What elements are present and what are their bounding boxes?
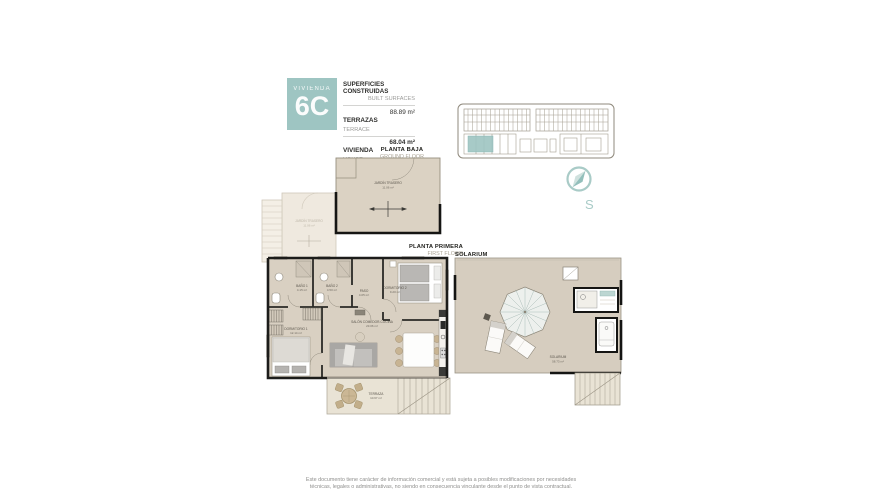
surfaces-subtitle: BUILT SURFACES xyxy=(343,96,415,102)
surfaces-title: SUPERFICIES CONSTRUIDAS xyxy=(343,81,415,95)
bano1-area: 4.15 m² xyxy=(297,288,307,292)
exterior-stairs xyxy=(262,200,282,262)
outdoor-kitchenette xyxy=(574,288,618,312)
sink xyxy=(275,273,283,281)
back-garden: JARDÍN TRASERO 11.06 m² xyxy=(336,158,440,233)
bedroom2-bed xyxy=(390,261,442,303)
terrace-sublabel: TERRACE xyxy=(343,127,378,133)
compass: S xyxy=(552,162,608,214)
compass-south-label: S xyxy=(585,197,594,212)
back-garden-name: JARDÍN TRASERO xyxy=(374,181,402,185)
outdoor-shower-unit xyxy=(596,318,617,352)
terrace-value: 88.89 m² xyxy=(390,109,415,116)
toilet xyxy=(272,293,280,303)
unit-code: 6C xyxy=(287,93,337,120)
key-plan-highlighted-unit xyxy=(468,136,493,152)
terraza-area: 10.67 m² xyxy=(370,396,382,400)
salon-area: 23.06 m² xyxy=(366,324,378,328)
dorm1-area: 12.14 m² xyxy=(290,331,302,335)
adjacent-garden-name: JARDÍN TRASERO xyxy=(295,219,323,223)
solarium-stairs xyxy=(575,373,620,405)
disclaimer-line2: técnicas, legales o administrativas, no … xyxy=(0,484,882,491)
terrace-label: TERRAZAS xyxy=(343,117,378,124)
first-floor-plan: BAÑO 1 4.15 m² BAÑO 2 4.50 m² PASO 4.05 … xyxy=(252,255,462,430)
disclaimer-line1: Este documento tiene carácter de informa… xyxy=(0,477,882,484)
sink xyxy=(320,273,328,281)
solarium-plan: SOLARIUM 58.73 m² xyxy=(450,250,630,410)
solarium-room-area: 58.73 m² xyxy=(552,360,564,364)
terrace-row: TERRAZAS TERRACE 88.89 m² xyxy=(343,105,415,133)
solarium-room-name: SOLARIUM xyxy=(550,355,567,359)
ground-floor-plan: JARDÍN TRASERO 11.06 m² JARDÍN TRASERO 1… xyxy=(252,152,482,272)
roof-access-box xyxy=(563,267,578,280)
disclaimer: Este documento tiene carácter de informa… xyxy=(0,477,882,491)
toilet xyxy=(316,293,324,303)
unit-badge: VIVIENDA 6C xyxy=(287,78,337,130)
house-value: 68.04 m² xyxy=(389,139,415,146)
dining-table-set xyxy=(396,333,441,367)
paso-area: 4.05 m² xyxy=(359,293,369,297)
bano2-area: 4.50 m² xyxy=(327,288,337,292)
adjacent-garden: JARDÍN TRASERO 11.06 m² xyxy=(262,193,336,263)
back-garden-area: 11.06 m² xyxy=(382,186,394,190)
dorm2-area: 9.20 m² xyxy=(390,290,400,294)
adjacent-garden-area: 11.06 m² xyxy=(303,224,315,228)
parasol xyxy=(500,287,550,337)
floorplan-sheet: VIVIENDA 6C SUPERFICIES CONSTRUIDAS BUIL… xyxy=(0,0,882,504)
